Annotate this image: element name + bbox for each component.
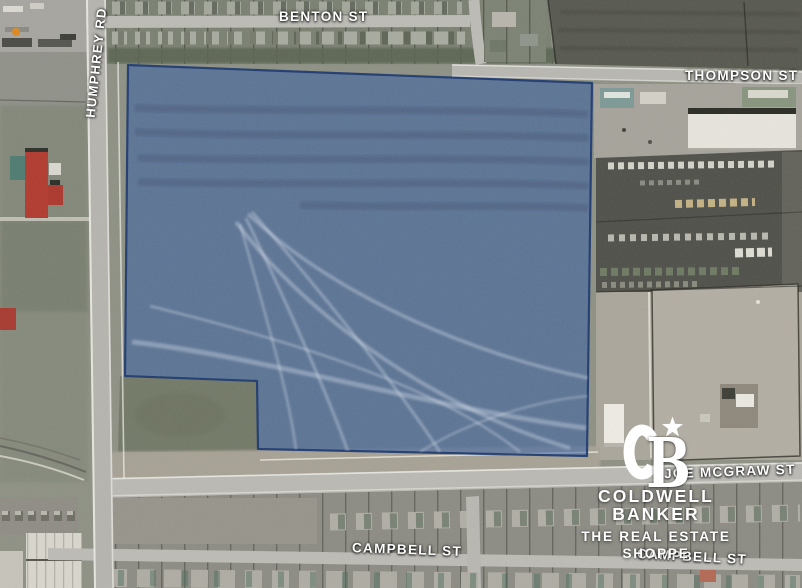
tagline-line-2: SHOPPE <box>556 547 756 561</box>
street-label-thompson: THOMPSON ST <box>685 69 798 83</box>
street-label-benton: BENTON ST <box>279 10 368 24</box>
coldwell-banker-logo: B COLDWELL BANKER THE REAL ESTATE SHOPPE <box>556 410 756 560</box>
aerial-listing-image: BENTON ST THOMPSON ST HUMPHREY RD JOE MC… <box>0 0 802 588</box>
monogram-b-letter: B <box>646 425 691 494</box>
tagline-line-1: THE REAL ESTATE <box>556 530 756 544</box>
cb-monogram: B <box>611 410 711 494</box>
